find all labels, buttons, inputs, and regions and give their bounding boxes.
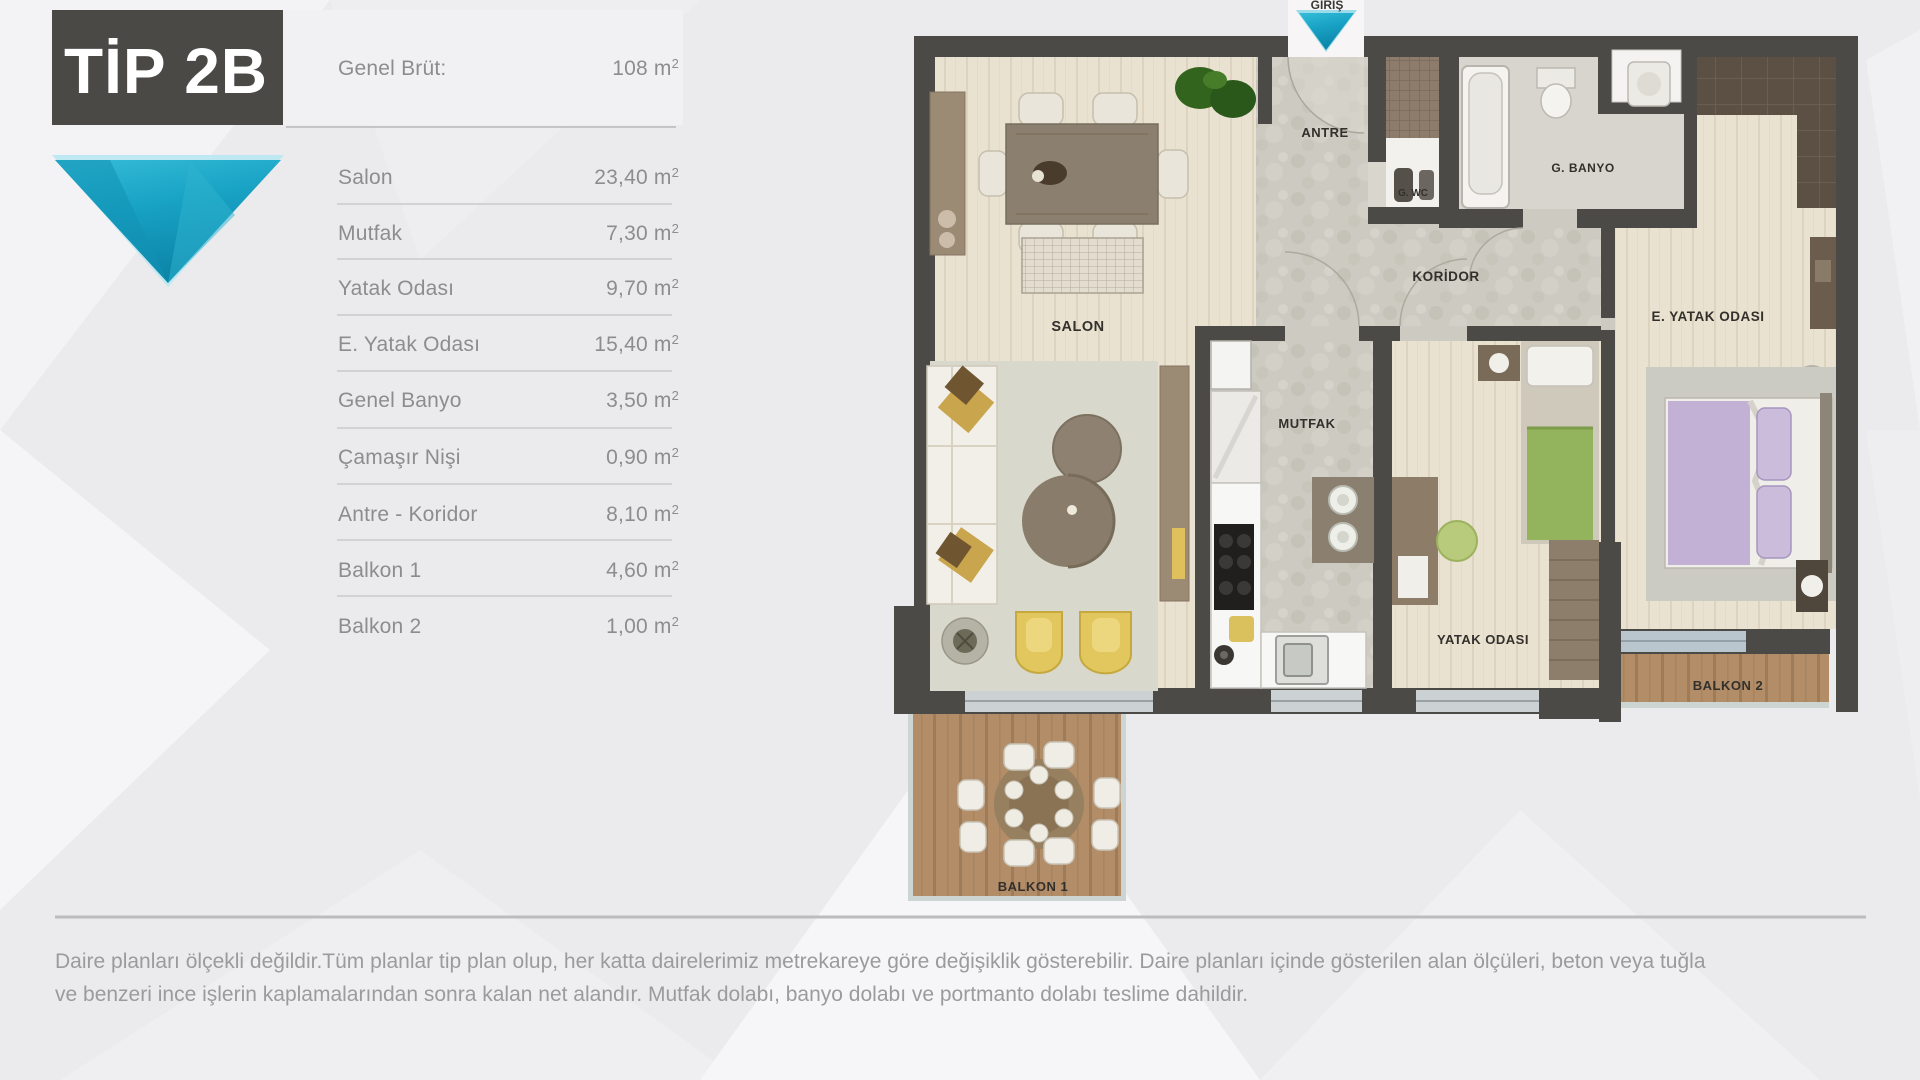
svg-text:15,40 m2: 15,40 m2 bbox=[594, 332, 679, 356]
svg-text:Genel Banyo: Genel Banyo bbox=[338, 389, 462, 412]
svg-text:Yatak Odası: Yatak Odası bbox=[338, 277, 454, 300]
svg-text:E. YATAK ODASI: E. YATAK ODASI bbox=[1651, 309, 1764, 324]
svg-text:9,70 m2: 9,70 m2 bbox=[606, 276, 679, 300]
svg-text:Salon: Salon bbox=[338, 166, 393, 189]
svg-text:G. BANYO: G. BANYO bbox=[1551, 161, 1614, 175]
svg-text:4,60 m2: 4,60 m2 bbox=[606, 558, 679, 582]
svg-text:Balkon 2: Balkon 2 bbox=[338, 615, 421, 638]
svg-text:1,00 m2: 1,00 m2 bbox=[606, 614, 679, 638]
svg-text:ve benzeri ince işlerin kaplam: ve benzeri ince işlerin kaplamalarından … bbox=[55, 983, 1248, 1006]
svg-text:3,50 m2: 3,50 m2 bbox=[606, 388, 679, 412]
svg-text:GİRİŞ: GİRİŞ bbox=[1311, 0, 1344, 12]
svg-text:23,40 m2: 23,40 m2 bbox=[594, 165, 679, 189]
svg-text:Çamaşır Nişi: Çamaşır Nişi bbox=[338, 446, 461, 469]
svg-text:8,10 m2: 8,10 m2 bbox=[606, 502, 679, 526]
svg-text:108 m2: 108 m2 bbox=[612, 56, 679, 80]
svg-text:Genel Brüt:: Genel Brüt: bbox=[338, 57, 446, 80]
svg-text:YATAK ODASI: YATAK ODASI bbox=[1437, 632, 1529, 647]
svg-text:0,90 m2: 0,90 m2 bbox=[606, 445, 679, 469]
svg-text:ANTRE: ANTRE bbox=[1301, 125, 1348, 140]
svg-text:SALON: SALON bbox=[1051, 319, 1104, 335]
svg-text:Antre - Koridor: Antre - Koridor bbox=[338, 503, 478, 526]
svg-text:TİP 2B: TİP 2B bbox=[64, 35, 268, 107]
svg-text:KORİDOR: KORİDOR bbox=[1412, 269, 1479, 284]
svg-text:Mutfak: Mutfak bbox=[338, 222, 403, 245]
svg-text:E. Yatak Odası: E. Yatak Odası bbox=[338, 333, 480, 356]
svg-text:MUTFAK: MUTFAK bbox=[1278, 416, 1335, 431]
svg-text:Daire planları ölçekli değildi: Daire planları ölçekli değildir.Tüm plan… bbox=[55, 950, 1706, 973]
svg-text:7,30 m2: 7,30 m2 bbox=[606, 221, 679, 245]
svg-text:BALKON 1: BALKON 1 bbox=[998, 879, 1068, 894]
svg-text:G. WC: G. WC bbox=[1398, 188, 1428, 199]
svg-text:BALKON 2: BALKON 2 bbox=[1693, 678, 1763, 693]
svg-text:Balkon 1: Balkon 1 bbox=[338, 559, 421, 582]
